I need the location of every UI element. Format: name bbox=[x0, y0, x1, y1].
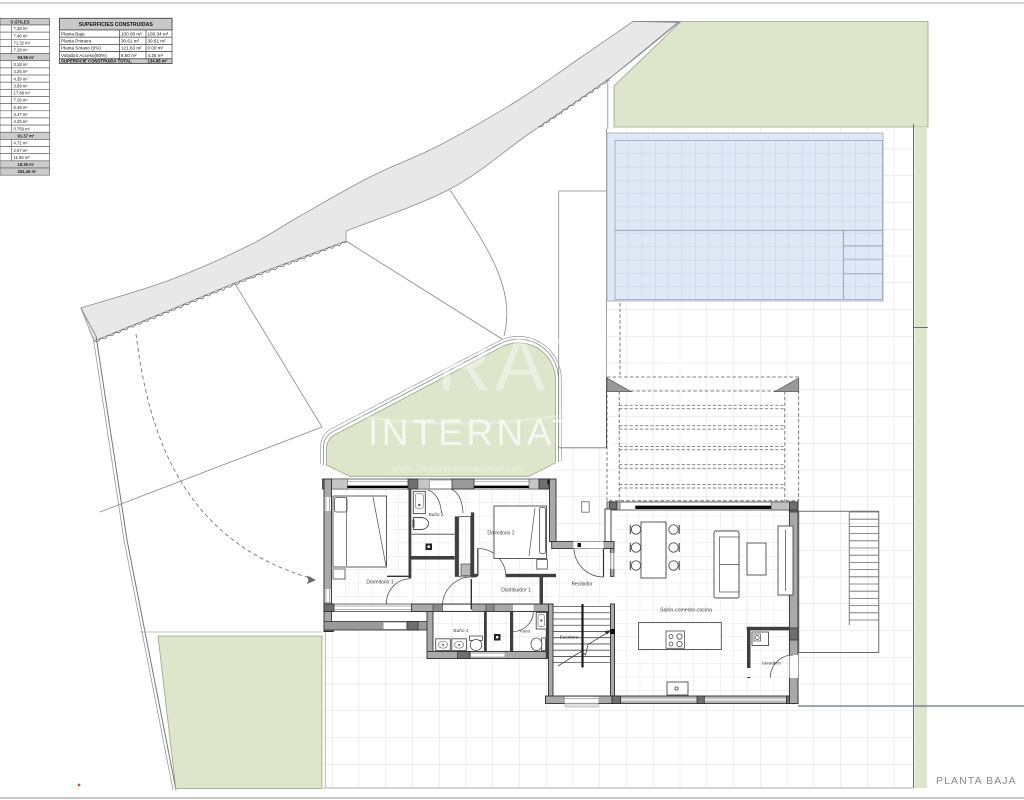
svg-text:Baño 1: Baño 1 bbox=[453, 628, 469, 634]
svg-text:Distribuidor 1: Distribuidor 1 bbox=[501, 588, 531, 594]
svg-text:121.63 m²: 121.63 m² bbox=[121, 46, 142, 51]
svg-text:0.759 m²: 0.759 m² bbox=[14, 126, 31, 131]
svg-text:Dormitorio 1: Dormitorio 1 bbox=[366, 580, 393, 586]
svg-text:11.66 m²: 11.66 m² bbox=[14, 155, 31, 160]
svg-text:93.55 m²: 93.55 m² bbox=[18, 55, 35, 60]
svg-text:3.47 m²: 3.47 m² bbox=[14, 112, 29, 117]
svg-text:Planta Primera: Planta Primera bbox=[61, 39, 92, 44]
svg-text:Planta Baja: Planta Baja bbox=[61, 31, 85, 36]
svg-text:lavadero: lavadero bbox=[762, 661, 781, 667]
svg-text:4.71 m²: 4.71 m² bbox=[14, 141, 29, 146]
svg-text:204.46 m²: 204.46 m² bbox=[18, 169, 38, 174]
svg-text:SUPERFICIES CONSTRUIDAS: SUPERFICIES CONSTRUIDAS bbox=[79, 22, 154, 28]
svg-text:PLANTA BAJA: PLANTA BAJA bbox=[936, 775, 1017, 787]
svg-text:100.06 m²: 100.06 m² bbox=[121, 31, 142, 36]
svg-text:Recibidor: Recibidor bbox=[571, 582, 592, 588]
svg-text:100.34 m²: 100.34 m² bbox=[148, 31, 169, 36]
svg-text:18.35 m²: 18.35 m² bbox=[18, 162, 35, 167]
svg-text:Baño 2: Baño 2 bbox=[429, 512, 444, 517]
svg-text:6.49 m²: 6.49 m² bbox=[14, 105, 29, 110]
svg-text:7.26 m²: 7.26 m² bbox=[14, 98, 29, 103]
svg-text:Escalera: Escalera bbox=[560, 635, 579, 641]
svg-text:Aseo: Aseo bbox=[520, 629, 531, 634]
svg-text:4.39 m²: 4.39 m² bbox=[14, 76, 29, 81]
svg-text:4.25 m²: 4.25 m² bbox=[148, 53, 164, 58]
svg-text:3.89 m²: 3.89 m² bbox=[14, 83, 29, 88]
svg-text:Voladizo Acceso(50%): Voladizo Acceso(50%) bbox=[61, 53, 107, 58]
svg-text:4.25 m²: 4.25 m² bbox=[14, 119, 29, 124]
svg-text:8.50 m²: 8.50 m² bbox=[121, 53, 137, 58]
svg-text:STRATUS: STRATUS bbox=[333, 322, 705, 406]
svg-text:2.67 m²: 2.67 m² bbox=[14, 148, 29, 153]
svg-text:7.38 m²: 7.38 m² bbox=[14, 26, 29, 31]
svg-text:30.61 m²: 30.61 m² bbox=[148, 39, 167, 44]
svg-text:Dormitorio 2: Dormitorio 2 bbox=[487, 531, 514, 537]
svg-text:Planta Sótano (0%): Planta Sótano (0%) bbox=[61, 46, 101, 51]
svg-text:0.00 m²: 0.00 m² bbox=[148, 46, 164, 51]
svg-text:www.StratusInternational.com: www.StratusInternational.com bbox=[391, 464, 525, 474]
svg-text:17.88 m²: 17.88 m² bbox=[14, 91, 31, 96]
svg-text:3.18 m²: 3.18 m² bbox=[14, 62, 29, 67]
svg-text:71.32 m²: 71.32 m² bbox=[14, 41, 31, 46]
svg-text:7.46 m²: 7.46 m² bbox=[14, 33, 29, 38]
svg-text:S ÚTILES: S ÚTILES bbox=[10, 20, 29, 25]
svg-text:SUPERFICIE CONSTRUIDA TOTAL: SUPERFICIE CONSTRUIDA TOTAL bbox=[61, 59, 132, 64]
svg-text:30.61 m²: 30.61 m² bbox=[121, 39, 140, 44]
svg-text:7.28 m²: 7.28 m² bbox=[14, 48, 29, 53]
svg-text:Salón-comedor-cocina: Salón-comedor-cocina bbox=[660, 608, 712, 614]
svg-text:4.26 m²: 4.26 m² bbox=[14, 69, 29, 74]
svg-text:INTERNATIONAL: INTERNATIONAL bbox=[368, 412, 707, 453]
svg-text:91.37 m²: 91.37 m² bbox=[18, 133, 35, 138]
svg-text:134.95 m²: 134.95 m² bbox=[148, 59, 168, 64]
